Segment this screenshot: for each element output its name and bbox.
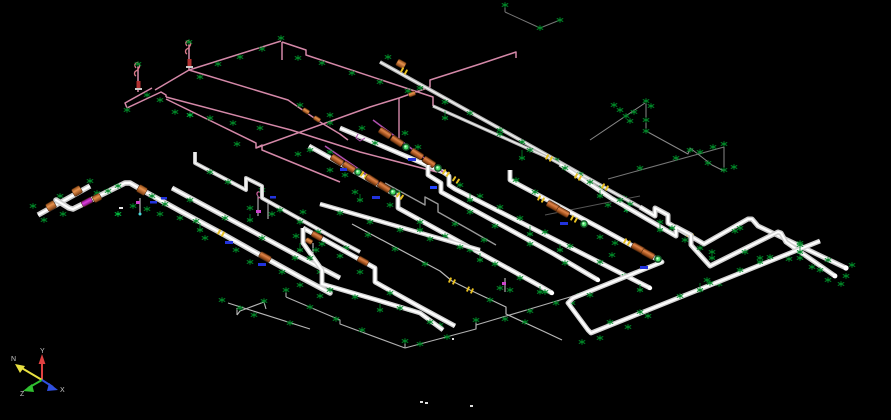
svg-text:N: N	[11, 356, 16, 363]
svg-text:Y: Y	[40, 348, 45, 355]
svg-text:X: X	[60, 387, 65, 394]
svg-text:Z: Z	[20, 391, 25, 398]
